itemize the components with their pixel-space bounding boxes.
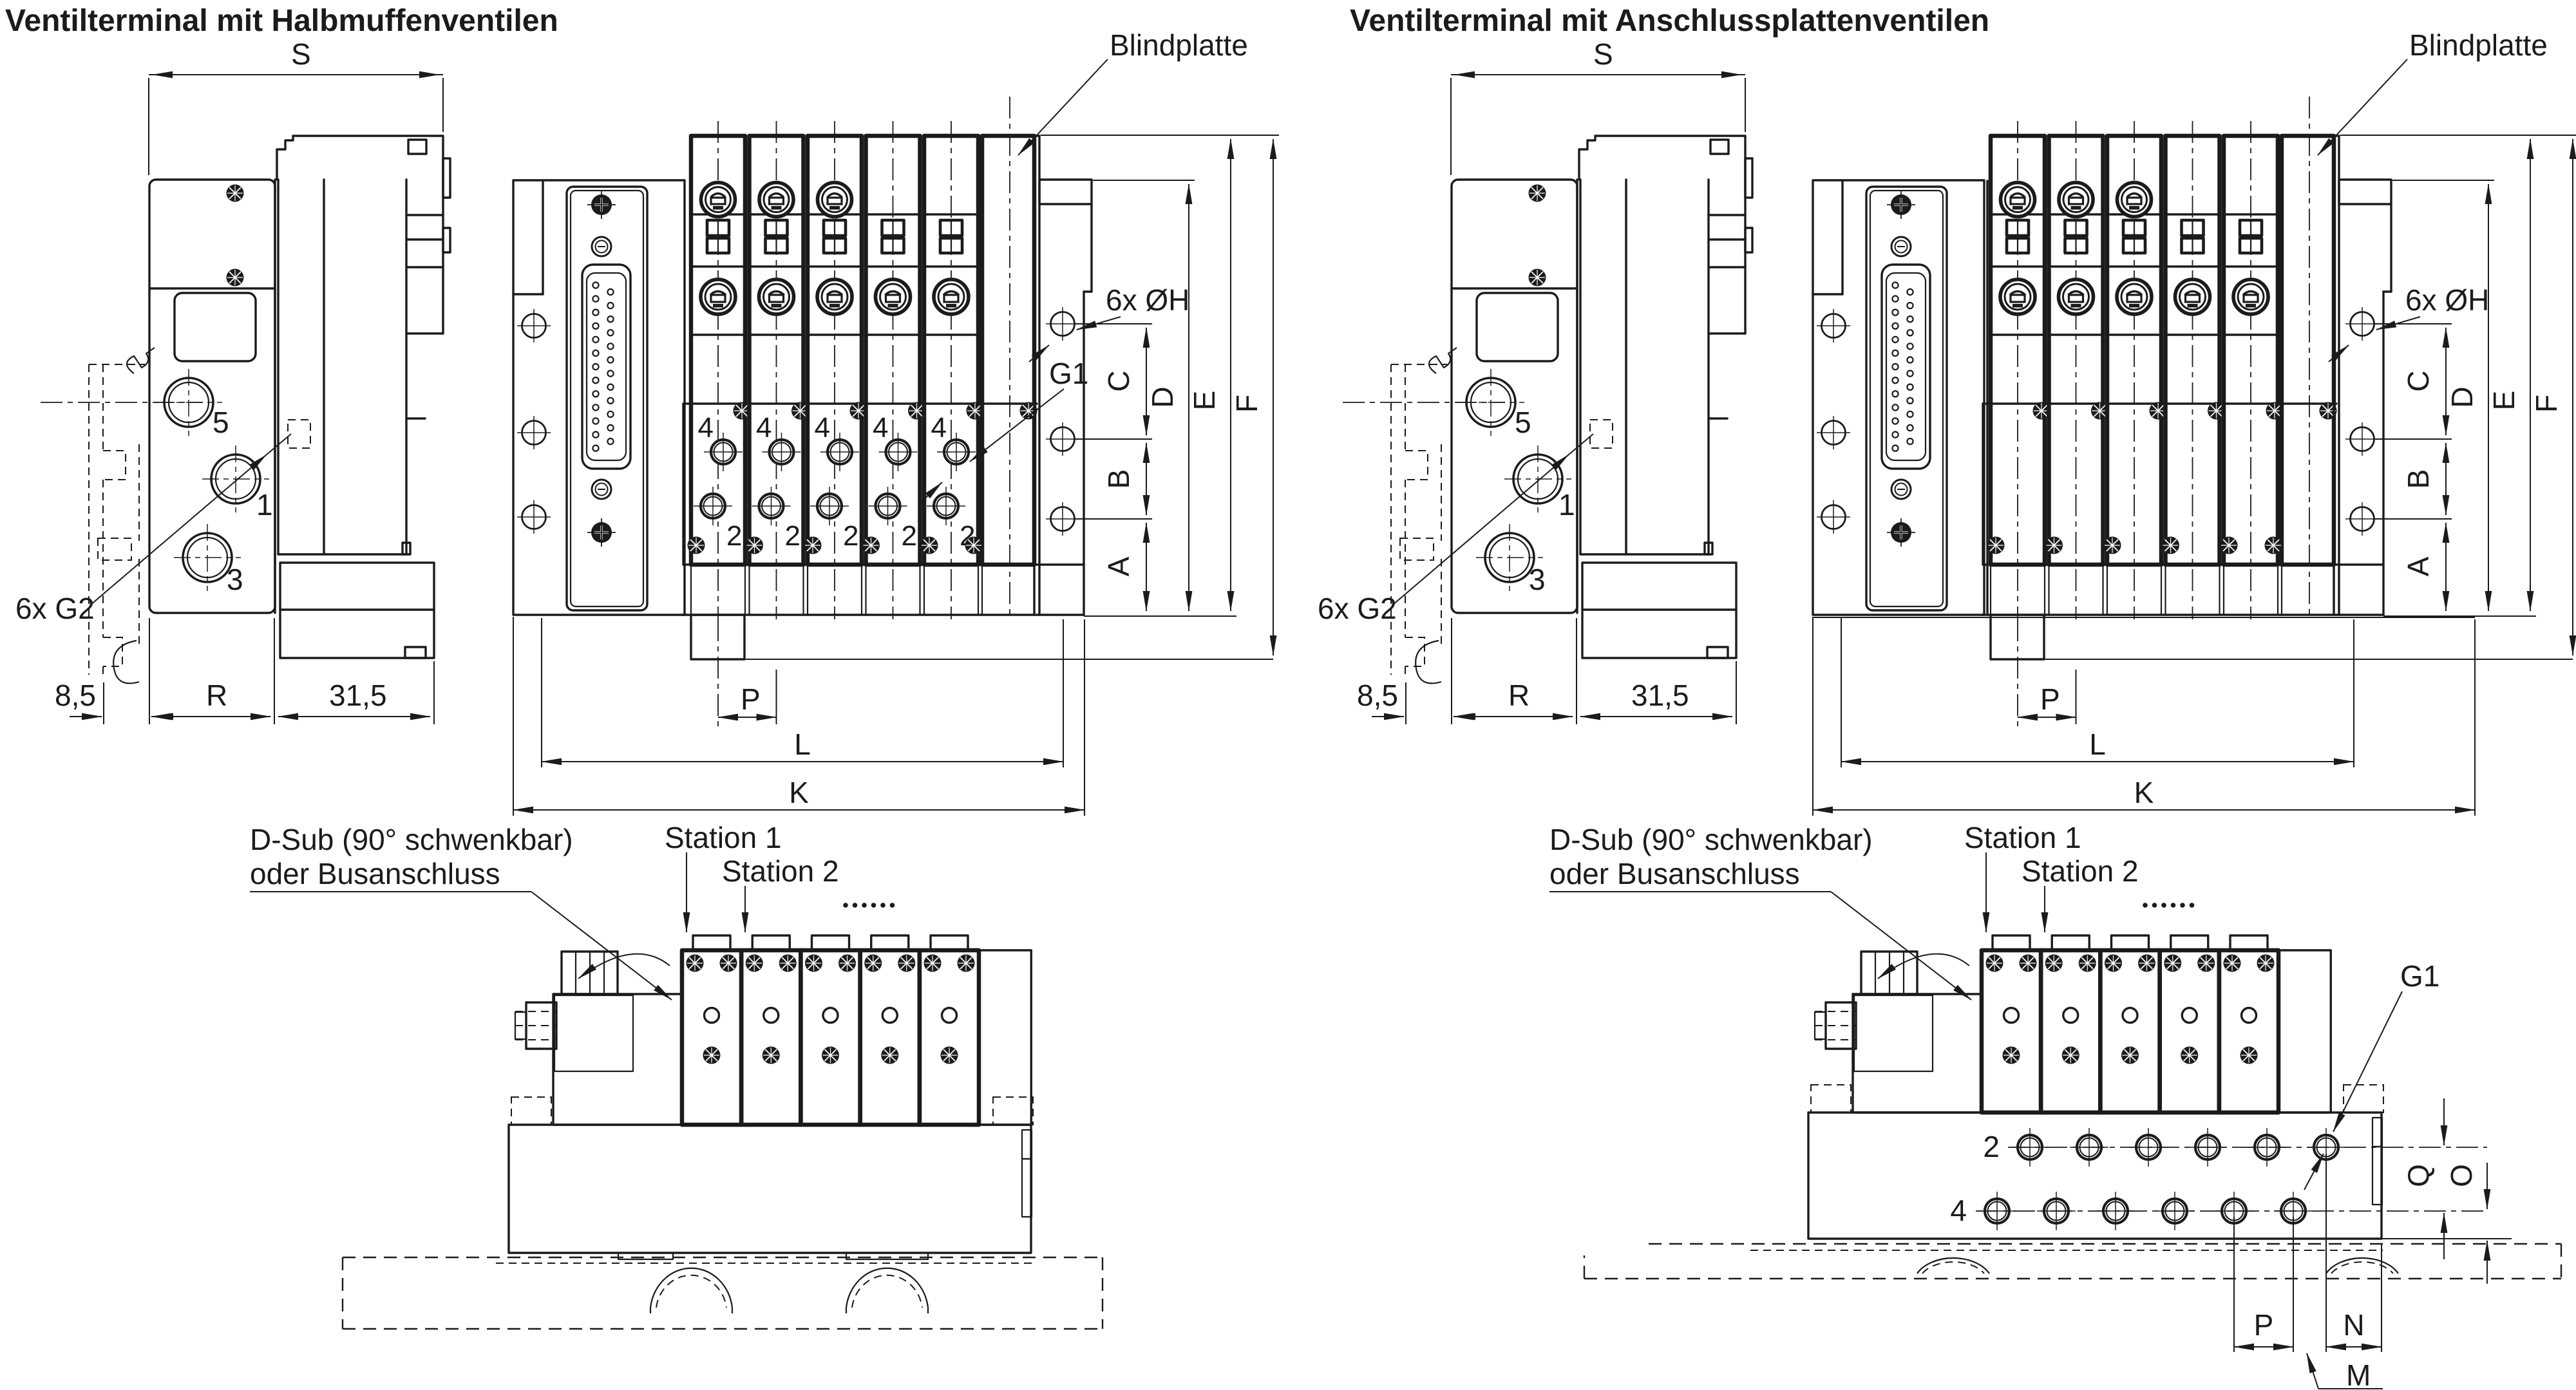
svg-text:Station 2: Station 2	[722, 854, 839, 888]
svg-text:P: P	[2254, 1308, 2274, 1342]
svg-text:Blindplatte: Blindplatte	[1110, 28, 1248, 62]
svg-text:3: 3	[1529, 563, 1546, 596]
svg-text:6x G2: 6x G2	[15, 592, 95, 625]
svg-text:O: O	[2445, 1164, 2478, 1187]
svg-text:Q: Q	[2401, 1164, 2435, 1187]
svg-text:4: 4	[931, 412, 947, 444]
svg-text:Station 2: Station 2	[2022, 854, 2139, 888]
svg-text:3: 3	[227, 563, 243, 596]
svg-text:C: C	[1102, 370, 1135, 391]
svg-text:2: 2	[785, 520, 800, 552]
svg-text:4: 4	[873, 412, 888, 444]
svg-text:2: 2	[902, 520, 917, 552]
svg-text:M: M	[2346, 1358, 2371, 1390]
svg-text:4: 4	[1950, 1194, 1967, 1227]
svg-text:31,5: 31,5	[329, 679, 387, 712]
svg-text:B: B	[2401, 469, 2435, 489]
svg-text:D: D	[1146, 386, 1179, 408]
svg-text:L: L	[2089, 728, 2106, 761]
svg-text:D-Sub (90° schwenkbar): D-Sub (90° schwenkbar)	[250, 823, 573, 856]
svg-text:D-Sub (90° schwenkbar): D-Sub (90° schwenkbar)	[1549, 823, 1873, 856]
svg-text:C: C	[2401, 370, 2435, 391]
svg-text:A: A	[2401, 556, 2435, 576]
svg-text:oder Busanschluss: oder Busanschluss	[250, 857, 500, 890]
svg-text:Station 1: Station 1	[1964, 821, 2081, 854]
svg-text:K: K	[789, 776, 809, 809]
svg-text:1: 1	[256, 488, 273, 521]
svg-text:2: 2	[726, 520, 742, 552]
svg-text:G1: G1	[2400, 959, 2439, 993]
svg-text:Station 1: Station 1	[665, 821, 782, 854]
svg-text:B: B	[1102, 469, 1135, 489]
svg-text:L: L	[794, 728, 811, 761]
svg-text:P: P	[741, 682, 761, 716]
svg-text:31,5: 31,5	[1631, 679, 1689, 712]
svg-text:5: 5	[213, 406, 229, 439]
svg-text:6x ØH: 6x ØH	[1106, 283, 1189, 317]
svg-text:P: P	[2040, 682, 2060, 716]
svg-text:F: F	[1230, 395, 1264, 413]
svg-text:1: 1	[1558, 488, 1575, 521]
svg-text:Blindplatte: Blindplatte	[2409, 28, 2548, 62]
svg-text:R: R	[1508, 679, 1529, 712]
svg-text:4: 4	[815, 412, 830, 444]
svg-text:8,5: 8,5	[1357, 679, 1398, 712]
svg-text:S: S	[1593, 37, 1613, 71]
svg-text:A: A	[1102, 556, 1135, 576]
svg-text:R: R	[206, 679, 227, 712]
svg-text:6x ØH: 6x ØH	[2405, 283, 2489, 317]
svg-text:oder Busanschluss: oder Busanschluss	[1549, 857, 1800, 890]
svg-text:S: S	[291, 37, 311, 71]
svg-text:N: N	[2343, 1308, 2364, 1342]
svg-text:E: E	[2487, 391, 2521, 411]
svg-text:5: 5	[1515, 406, 1531, 439]
svg-text:Ventilterminal mit Anschlusspl: Ventilterminal mit Anschlussplattenventi…	[1350, 4, 1989, 38]
svg-text:G1: G1	[1049, 357, 1088, 390]
svg-text:8,5: 8,5	[55, 679, 96, 712]
svg-text:K: K	[2134, 776, 2154, 809]
svg-text:2: 2	[1983, 1130, 2000, 1163]
svg-text:4: 4	[698, 412, 714, 444]
svg-text:6x G2: 6x G2	[1318, 592, 1397, 625]
svg-text:4: 4	[756, 412, 772, 444]
svg-text:2: 2	[843, 520, 858, 552]
svg-text:Ventilterminal mit Halbmuffenv: Ventilterminal mit Halbmuffenventilen	[5, 4, 558, 38]
svg-text:F: F	[2530, 395, 2563, 413]
svg-text:D: D	[2445, 386, 2479, 408]
svg-text:E: E	[1188, 391, 1221, 411]
